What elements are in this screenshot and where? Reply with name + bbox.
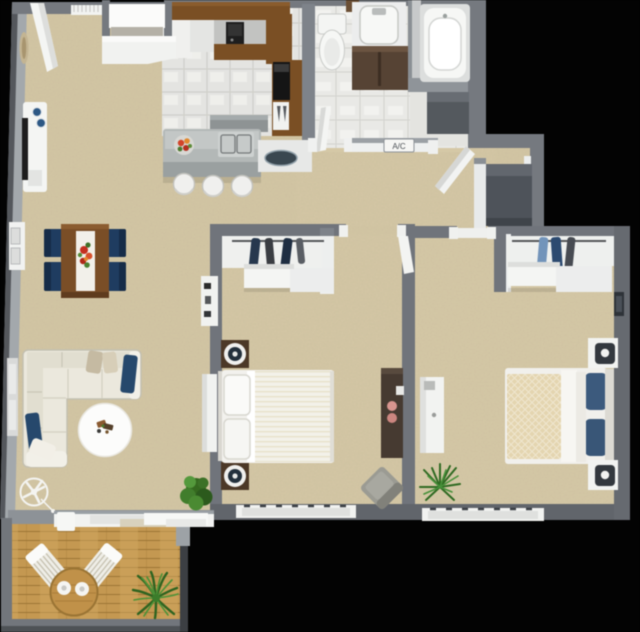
svg-text:A/C: A/C [392,142,406,151]
